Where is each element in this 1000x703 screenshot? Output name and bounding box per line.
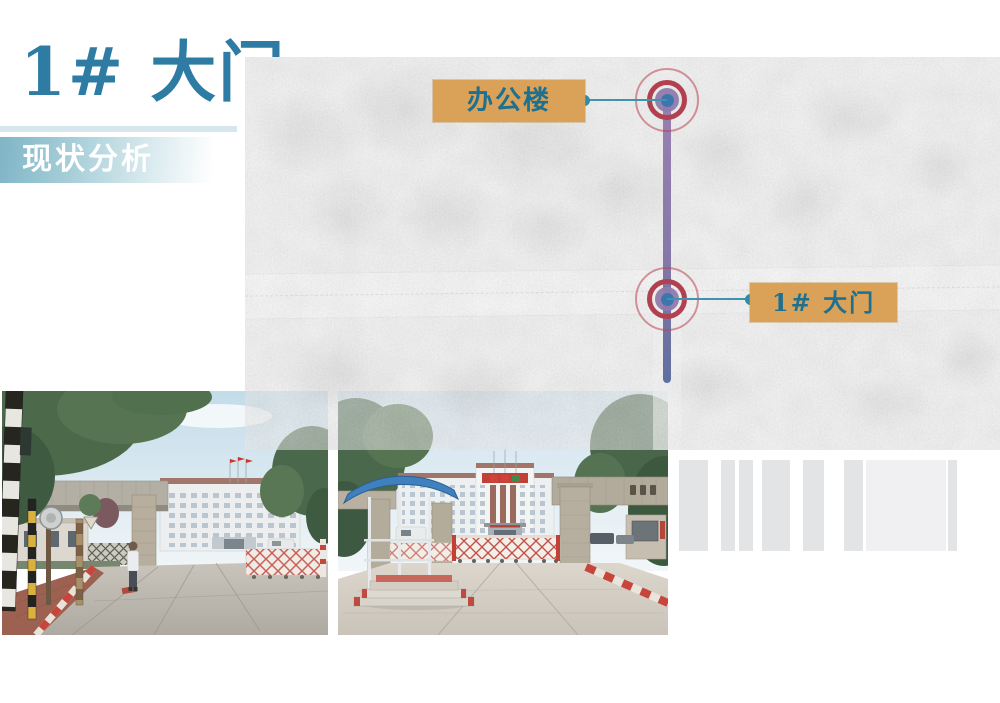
texture-bar: [866, 460, 946, 551]
subtitle-banner: 现状分析: [0, 137, 212, 183]
texture-bar: [762, 460, 790, 551]
presentation-slide: 1# 大门 现状分析: [0, 0, 1000, 703]
texture-bar: [844, 460, 863, 551]
parked-car: [268, 539, 294, 550]
texture-bar: [679, 460, 708, 551]
aerial-map: 办公楼 1# 大门: [245, 57, 1000, 450]
subtitle-text: 现状分析: [22, 137, 154, 183]
connector-line-gate: [667, 298, 750, 300]
texture-bar: [803, 460, 824, 551]
traffic-signal-post: [28, 499, 36, 619]
connector-line-office: [584, 99, 667, 101]
map-label-office: 办公楼: [433, 80, 585, 122]
map-label-gate: 1# 大门: [750, 283, 897, 322]
texture-bar: [739, 460, 753, 551]
leader-line-vertical: [663, 100, 671, 383]
subtitle-accent-strip: [0, 126, 237, 132]
texture-bar: [948, 460, 957, 551]
map-noise-texture: [245, 57, 1000, 450]
beam-inscription: [630, 485, 656, 495]
texture-bar: [721, 460, 735, 551]
